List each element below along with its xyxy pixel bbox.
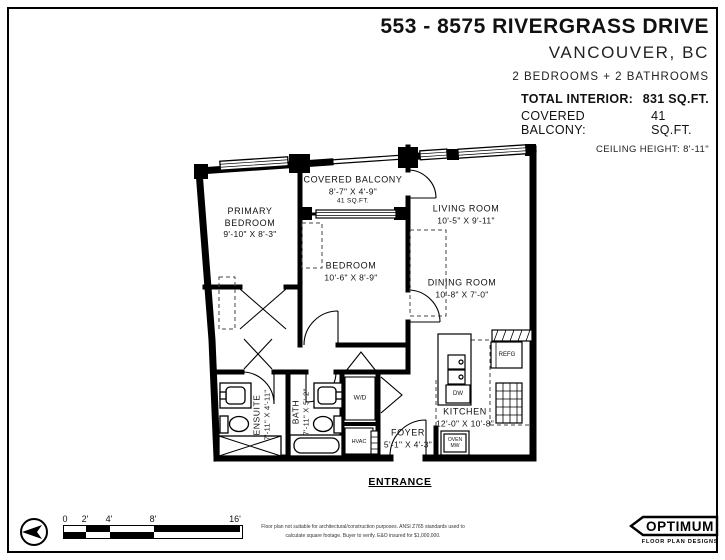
microwave-label: MW [451,443,460,449]
room-dims: 8'-7" X 4'-9" [288,186,418,197]
room-dims: 7'-11" X 5'-2" [302,362,312,462]
room-area: 41 SQ.FT. [288,197,418,205]
balcony-window-wall [300,210,408,218]
north-arrow-icon [18,516,50,548]
room-dims: 5'-1" X 4'-3" [363,439,453,450]
room-name: BEDROOM [296,261,406,273]
room-label-bedroom: BEDROOM 10'-6" X 8'-9" [296,261,406,284]
disclaimer-line: calculate square footage. Buyer to verif… [261,532,464,541]
room-name: LIVING ROOM [406,204,526,216]
entrance-label: ENTRANCE [368,476,431,488]
scale-bar-segment [154,532,240,538]
room-dims: 10'-5" X 9'-11" [406,215,526,226]
scale-bar: 0 2' 4' 8' 16' [63,514,241,539]
disclaimer-line: Floor plan not suitable for architectura… [261,523,464,532]
room-dims: 10'-8" X 7'-0" [402,289,522,300]
scale-tick-label: 16' [229,514,241,524]
room-label-primary-bedroom: PRIMARY BEDROOM 9'-10" X 8'-3" [204,206,296,240]
room-label-foyer: FOYER 5'-1" X 4'-3" [363,428,453,451]
scale-bar-segment [110,532,154,538]
disclaimer: Floor plan not suitable for architectura… [261,523,464,540]
logo-subtitle: FLOOR PLAN DESIGNS [642,539,718,545]
room-dims: 10'-6" X 8'-9" [296,272,406,283]
room-name: BATH [291,362,302,462]
room-name: DINING ROOM [402,278,522,290]
scale-tick-label: 8' [150,514,157,524]
room-label-living-room: LIVING ROOM 10'-5" X 9'-11" [406,204,526,227]
fridge-label: REFG [499,352,516,358]
scale-bar-segment [64,532,86,538]
washer-dryer-label: W/D [354,395,367,402]
hvac-label: HVAC [352,439,367,445]
room-name: KITCHEN [405,407,525,419]
room-name: FOYER [363,428,453,440]
scale-tick-label: 2' [82,514,89,524]
room-dims: 7'-11" X 4'-11" [263,365,273,465]
scale-tick-label: 0 [62,514,67,524]
balcony-railing [330,155,404,164]
room-name: COVERED BALCONY [288,174,418,186]
bathroom-fixtures [219,383,342,456]
room-label-dining-room: DINING ROOM 10'-8" X 7'-0" [402,278,522,301]
dishwasher-label: DW [453,391,463,397]
scale-bar-blocks [63,525,243,539]
room-name: PRIMARY BEDROOM [204,206,296,229]
room-label-kitchen: KITCHEN 12'-0" X 10'-8" [405,407,525,430]
scale-tick-labels: 0 2' 4' 8' 16' [63,514,241,525]
room-label-ensuite: ENSUITE 7'-11" X 4'-11" [252,365,273,465]
scale-bar-segment [86,532,110,538]
room-dims: 9'-10" X 8'-3" [204,229,296,240]
room-label-covered-balcony: COVERED BALCONY 8'-7" X 4'-9" 41 SQ.FT. [288,174,418,205]
scale-tick-label: 4' [106,514,113,524]
optimum-logo: OPTIMUM FLOOR PLAN DESIGNS [627,514,721,550]
room-label-bath: BATH 7'-11" X 5'-2" [291,362,312,462]
logo-name: OPTIMUM [646,519,714,534]
room-name: ENSUITE [252,365,263,465]
